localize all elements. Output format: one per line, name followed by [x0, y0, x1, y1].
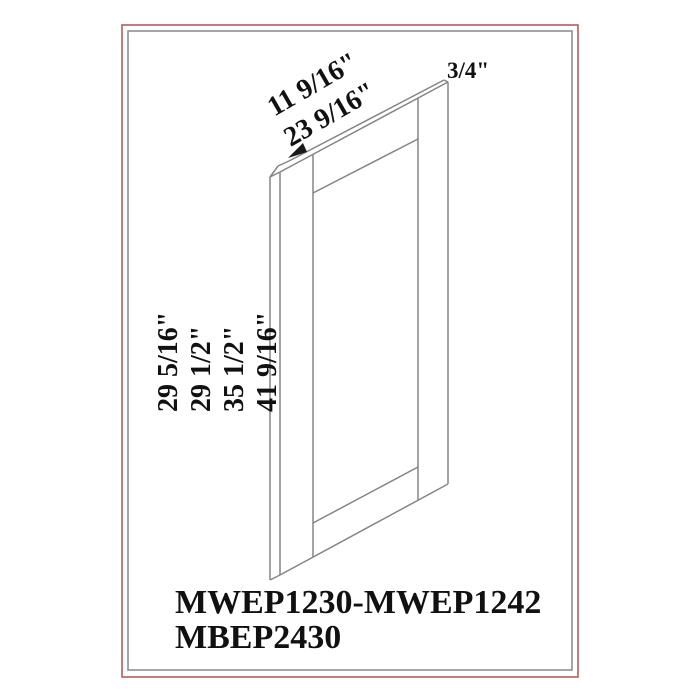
panel-bottom-left-cap	[270, 575, 280, 580]
catalog-spec-page: 11 9/16" 23 9/16" 3/4" 29 5/16" 29 1/2" …	[0, 0, 700, 700]
dimension-height-label-3: 35 1/2"	[219, 326, 250, 412]
dimension-height-label-1: 29 5/16"	[153, 312, 184, 412]
end-panel-diagram: 11 9/16" 23 9/16" 3/4" 29 5/16" 29 1/2" …	[0, 0, 700, 700]
top-rail-bottom-edge	[313, 139, 418, 193]
dimension-thickness-label: 3/4"	[447, 58, 489, 83]
product-code-line1: MWEP1230-MWEP1242	[175, 584, 541, 621]
product-code-line2: MBEP2430	[175, 619, 341, 656]
dimension-height-label-4: 41 9/16"	[252, 312, 283, 412]
dimension-height-label-2: 29 1/2"	[186, 326, 217, 412]
bottom-rail-top-edge	[313, 467, 418, 523]
panel-top-left-cap-top	[278, 161, 289, 166]
panel-bottom-edge	[280, 484, 448, 575]
